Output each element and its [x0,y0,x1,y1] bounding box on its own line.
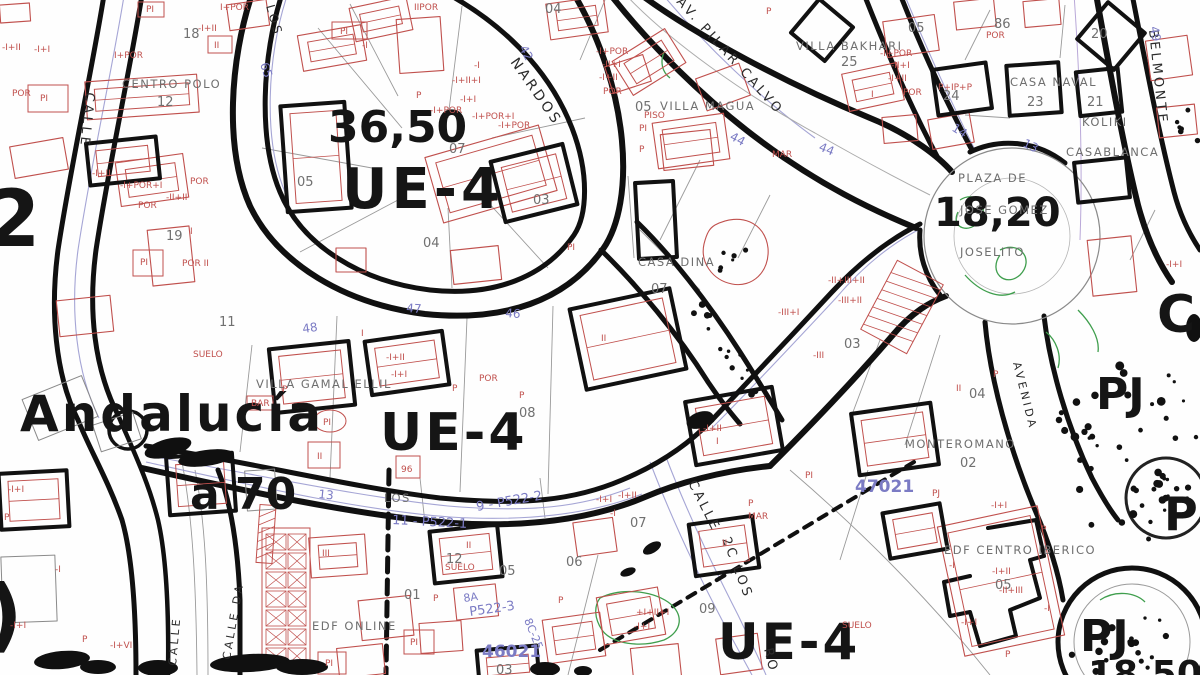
parcel-number: 07 [651,282,668,297]
parcel-number: 11 [219,315,236,330]
road-left-east-edge [93,0,142,415]
height-annotation: -I+II [386,353,405,363]
height-annotation: P [416,91,422,101]
building-red [309,534,368,578]
height-annotation: POR [986,31,1005,41]
height-annotation: -III [813,351,824,361]
height-annotation: -I+I [391,370,407,380]
building-red [396,17,444,74]
height-annotation: -I+II [703,424,722,434]
street-number: 47 [406,301,422,316]
height-annotation: PI [567,243,575,253]
height-annotation: -I+II [618,491,637,501]
region-label: UE-4 [380,403,528,463]
building-red [1023,0,1061,28]
red-annotation-box [208,36,232,53]
height-annotation: II [722,539,727,549]
region-label: a 70 [190,469,296,520]
red-hatched-area [861,260,944,353]
street-name: AVENIDA [1010,361,1039,432]
height-annotation: PI [140,258,148,268]
place-name: CENTRO POLO [122,77,221,91]
height-annotation: -I+II [992,567,1011,577]
street-name: LOS [263,3,285,38]
height-annotation: I [716,437,719,447]
red-annotation-box [404,630,434,654]
parcel-number: 04 [423,236,440,251]
street-number: 46 [505,306,521,321]
building-red [450,246,501,285]
parcel-number: 25 [841,55,858,70]
height-annotation: II [956,384,961,394]
height-annotation: SUELO [842,621,872,631]
height-annotation: II [214,41,219,51]
height-annotation: -II+III [999,586,1023,596]
region-label: PJ [1096,369,1145,420]
height-annotation: II [317,452,322,462]
height-annotation: PI [40,94,48,104]
building-red [630,644,681,675]
height-annotation: -I+POR [498,121,530,131]
region-label: 2 [0,175,40,265]
height-annotation: PI [639,124,647,134]
place-name: LOS [384,491,411,505]
ink-blob [619,566,637,579]
building-red [337,644,386,675]
building-red [542,612,606,664]
region-label: UE-4 [718,613,860,671]
place-name: JOSE GOMEZ [959,203,1049,217]
parcel-number: 02 [960,456,977,471]
region-label: 18,50 [1088,654,1200,675]
parcel-number: 03 [533,193,550,208]
building-red [954,0,997,30]
street-number: 48 [301,320,318,336]
parcel-number: 21 [1087,95,1104,110]
parcel-number: 03 [844,337,861,352]
street-number: 9 - P522-2 [475,489,543,515]
street-number: 13 [318,487,335,503]
height-annotation: P [639,145,645,155]
parcel-number: 23 [1027,95,1044,110]
building-black-traced [635,181,677,259]
height-annotation: P [1041,525,1047,535]
parcel-number: 19 [166,229,183,244]
building-red [419,621,463,654]
height-annotation: P+IP+P [938,83,973,93]
height-annotation: -I [949,561,955,571]
height-annotation: -I [362,41,368,51]
height-annotation: P [519,391,525,401]
height-annotation: -I+II [198,24,217,34]
height-annotation: I [871,90,874,100]
height-annotation: -I+POR [880,49,912,59]
height-annotation: P [452,384,458,394]
place-name: CASABLANCA [1066,145,1159,159]
height-annotation: -I+II [92,169,111,179]
height-annotation: -I+I [8,485,24,495]
buildings-layer [0,0,1197,675]
height-annotation: PJ [932,489,940,499]
red-annotation-box [308,442,340,468]
place-name: VILLA GAMAL ELLIL [256,377,392,391]
height-annotation: POR [138,201,157,211]
region-label: P [1164,487,1198,541]
parcel-number: 05 [499,564,516,579]
place-name: PLAZA DE [958,171,1027,185]
place-name: EDF ONLINE [312,619,397,633]
street-name: CALLE [76,92,97,149]
height-annotation: -I+POR [430,106,462,116]
height-annotation: P [433,594,439,604]
height-annotation: II [466,541,471,551]
height-annotation: I+POR [220,3,249,13]
height-annotation: -II+I [891,61,910,71]
parcel-number: 20 [1091,27,1108,42]
height-annotation: -I+I [991,501,1007,511]
place-name: KOLIKI [1082,115,1128,129]
height-annotation: -I+POR [596,47,628,57]
parcel-number: 06 [566,555,583,570]
height-annotation: -I+I [1166,260,1182,270]
height-annotation: II [601,334,606,344]
street-number: 49 [1147,25,1163,42]
height-annotation: PISO [644,111,665,121]
casa-dina-pond-outline [703,219,768,284]
parcel-number: 12 [157,95,174,110]
place-name: VILLA MAGUA [660,99,755,113]
parcel-number: 86 [994,17,1011,32]
height-annotation: POR [190,177,209,187]
parcel-number: 05 [908,21,925,36]
parcel-number: 01 [404,588,421,603]
cadastral-map-screenshot: 236,50UE-4UE-4UE-418,20Andalucíaa 70)PJP… [0,0,1200,675]
height-annotation: P [993,370,999,380]
region-label: Andalucía [20,385,324,443]
x-unit-building [262,528,310,668]
height-annotation: SUELO [193,350,223,360]
height-annotation: PI [805,471,813,481]
height-annotation: -I+I [34,45,50,55]
height-annotation: -I [610,509,616,519]
parcel-number: 08 [519,406,536,421]
height-annotation: -I+I [460,95,476,105]
region-label: UE-4 [342,157,504,222]
street-number: 46021 [482,642,541,662]
height-annotation: -III+II [838,296,862,306]
height-annotation: I+POR [114,51,143,61]
height-annotation: P [282,385,288,395]
height-annotation: POR [12,89,31,99]
building-red [612,29,686,96]
street-number: 47021 [855,477,914,497]
height-annotation: POR [603,87,622,97]
height-annotation: MAR [772,150,792,160]
height-annotation: 96 [401,465,413,475]
street-number: 13 [1021,136,1041,155]
height-annotation: -I [474,61,480,71]
height-annotation: BAR [251,399,270,409]
building-black-traced [570,288,687,389]
building-black-traced [0,470,69,529]
building-black-traced [1074,157,1130,202]
building-red [573,517,617,556]
height-annotation: -I+I [961,618,977,628]
height-annotation: -III+I [778,308,799,318]
parcel-number: 07 [630,516,647,531]
plaza-arc-sw [920,230,940,295]
height-annotation: P [4,513,10,523]
parcel-number: 05 [297,175,314,190]
place-name: EDF CENTRO IBERICO [944,543,1096,557]
height-annotation: P [82,635,88,645]
height-annotation: -I+II+I [452,76,481,86]
building-black-traced [429,525,502,584]
height-annotation: POR II [182,259,209,269]
height-annotation: -I+I [596,495,612,505]
height-annotation: SUELO [445,563,475,573]
height-annotation: -I+POR+I [120,181,162,191]
height-annotation: MAR [748,512,768,522]
building-red [652,113,730,169]
height-annotation: -I+I [10,621,26,631]
height-annotation: P [1005,650,1011,660]
height-annotation: I [190,227,193,237]
ink-blob [80,660,116,674]
parcel-number: 04 [545,2,562,17]
height-annotation: III [322,549,330,559]
place-name: MONTEROMANO [905,437,1016,451]
place-name: CASA DINA [638,255,715,269]
height-annotation: P [748,499,754,509]
parcel-number: 07 [449,142,466,157]
height-annotation: -I+II [2,43,21,53]
parcel-number: 03 [496,663,513,675]
height-annotation: PI [325,659,333,669]
height-annotation: IIPOR [414,3,438,13]
building-red [10,138,69,179]
height-annotation: PI [410,638,418,648]
height-annotation: -I [1044,604,1050,614]
ink-blob [530,662,560,675]
parcel-number: 09 [699,602,716,617]
place-name: CASA NAVAL [1010,75,1097,89]
height-annotation: P [766,7,772,17]
height-annotation: -I+II [599,73,618,83]
region-label: C [1157,285,1195,345]
height-annotation: POR [903,88,922,98]
street-number: 44 [817,140,836,159]
height-annotation: -I+II [888,74,907,84]
height-annotation: -I+I [634,622,650,632]
height-annotation: -II+III+II [828,276,865,286]
curb-lines [75,0,976,675]
region-label: ) [0,568,23,661]
street-name: CALLE DA [220,582,246,661]
building-red [56,295,113,336]
height-annotation: POR [479,374,498,384]
cadastral-map: 236,50UE-4UE-4UE-418,20Andalucíaa 70)PJP… [0,0,1200,675]
place-name: JOSELITO [959,245,1025,259]
height-annotation: -I [55,565,61,575]
street-number: 11 - P522-1 [392,513,468,532]
ink-blob [276,659,328,675]
parcel-number: 04 [969,387,986,402]
height-annotation: PI [323,418,331,428]
ink-blob [574,666,592,675]
street-number: 8A [463,590,480,605]
ink-blob [641,539,663,558]
building-red [0,3,31,23]
height-annotation: PI [340,27,348,37]
height-annotation: I [361,329,364,339]
height-annotation: -II+II [166,193,187,203]
height-annotation: -II+I [602,60,621,70]
height-annotation: -I+VI [110,641,132,651]
height-annotation: PI [146,5,154,15]
height-annotation: P [558,596,564,606]
height-annotation: +I+II+I [636,608,669,618]
labels-layer: 236,50UE-4UE-4UE-418,20Andalucíaa 70)PJP… [0,0,1200,675]
